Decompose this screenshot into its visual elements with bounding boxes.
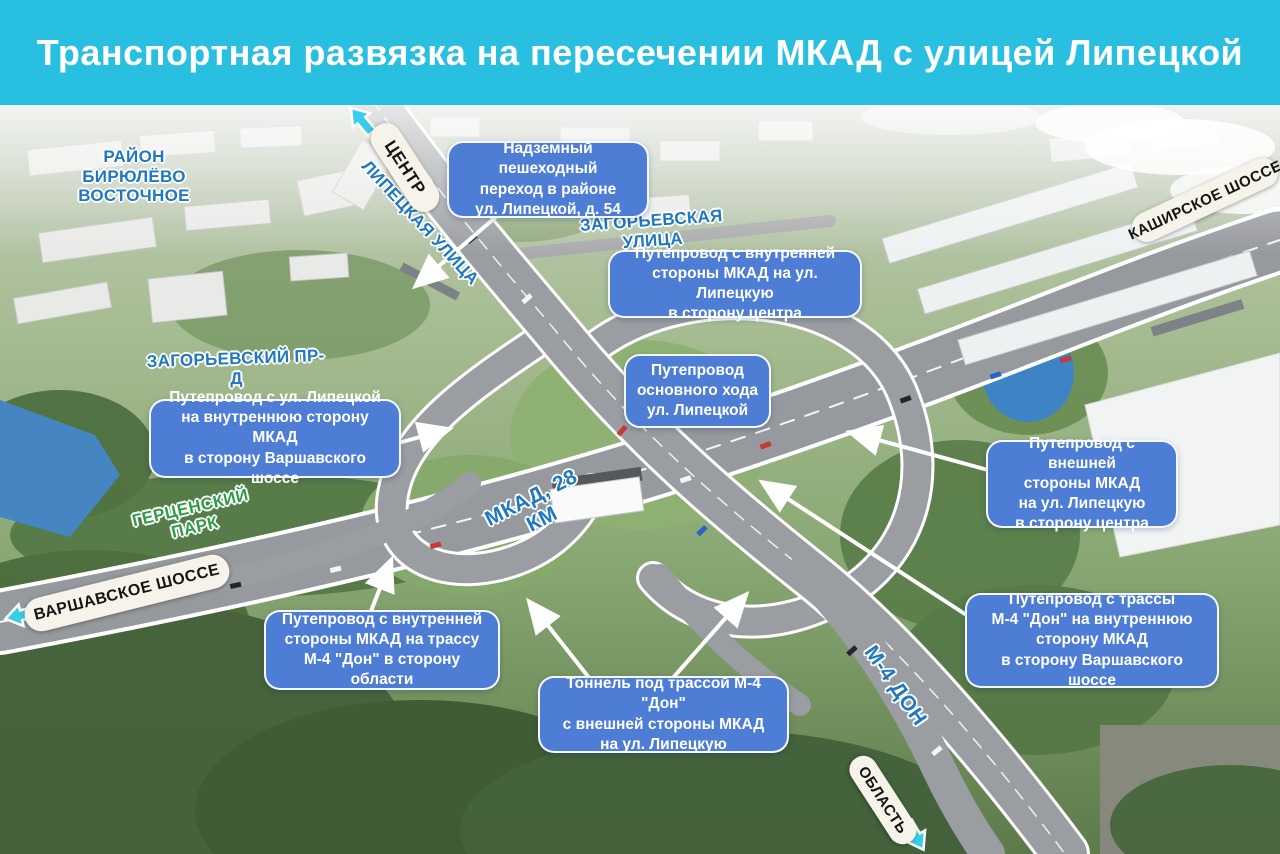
callout-m4-to-inner-mkad: Путепровод с трассы М-4 "Дон" на внутрен… [965,593,1219,688]
callout-tunnel-under-m4: Тоннель под трассой М-4 "Дон" с внешней … [538,676,789,753]
callout-lipetskaya-to-inner-mkad: Путепровод с ул. Липецкой на внутреннюю … [149,399,401,478]
callout-outer-mkad-to-lipetskaya: Путепровод с внешней стороны МКАД на ул.… [986,440,1178,528]
page-title: Транспортная развязка на пересечении МКА… [37,32,1243,74]
callout-inner-mkad-to-m4: Путепровод с внутренней стороны МКАД на … [264,610,500,690]
callout-lipetskaya-mainline: Путепровод основного хода ул. Липецкой [624,354,771,428]
title-bar: Транспортная развязка на пересечении МКА… [0,0,1280,105]
callout-inner-mkad-to-lipetskaya: Путепровод с внутренней стороны МКАД на … [608,250,862,318]
zagorevsky-proezd-label: ЗАГОРЬЕВСКИЙ ПР-Д [145,346,326,391]
district-label: РАЙОН БИРЮЛЁВО ВОСТОЧНОЕ [24,147,244,206]
callout-pedestrian-bridge: Надземный пешеходный переход в районе ул… [447,141,649,218]
